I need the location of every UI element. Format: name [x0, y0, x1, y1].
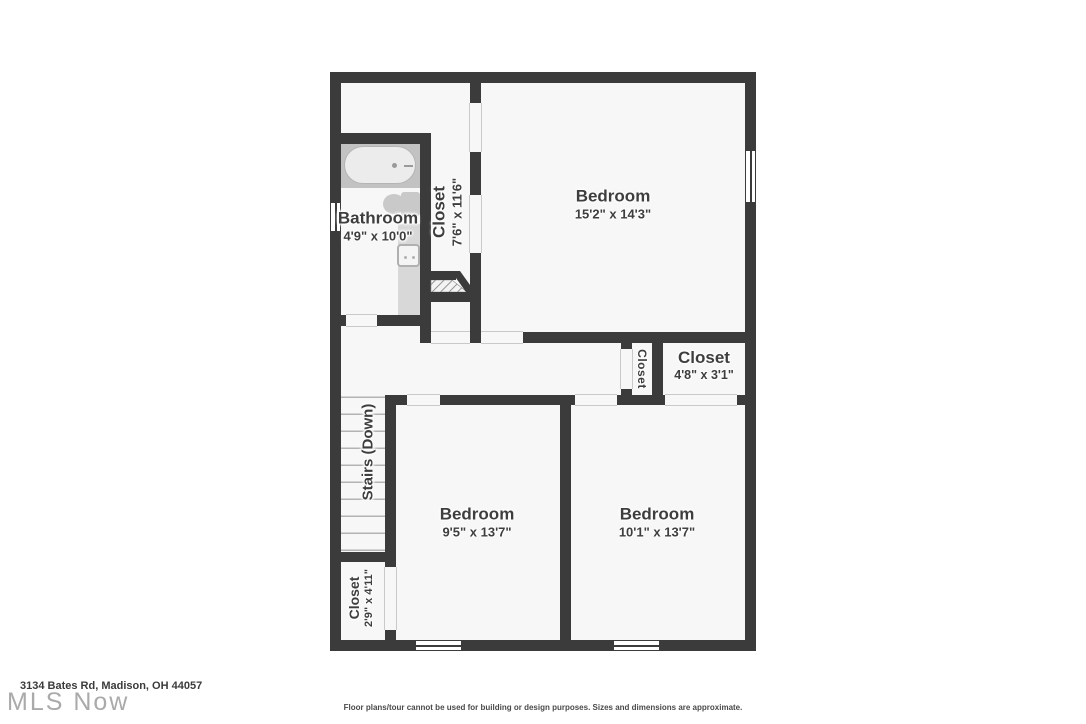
- window-bedroom-right: [613, 640, 660, 651]
- floor-plan: Bathroom 4'9" x 10'0" Closet 7'6" x 11'6…: [330, 72, 756, 651]
- room-label-closet-hall: Closet 4'8" x 3'1": [674, 349, 734, 383]
- room-dims: 7'6" x 11'6": [449, 178, 465, 246]
- room-label-bedroom-top: Bedroom 15'2" x 14'3": [575, 188, 651, 223]
- door-opening-closet-upper-2: [469, 195, 482, 253]
- wall-bedroom-divider: [560, 395, 571, 640]
- room-label-bedroom-left: Bedroom 9'5" x 13'7": [440, 506, 515, 541]
- sink-icon: [397, 244, 420, 267]
- room-dims: 4'9" x 10'0": [338, 228, 418, 244]
- window-bedroom-top: [745, 150, 756, 203]
- room-label-bathroom: Bathroom 4'9" x 10'0": [338, 210, 418, 245]
- wall-stairs-bottom: [330, 552, 396, 562]
- room-name: Stairs (Down): [360, 404, 377, 501]
- door-opening-bedroom-right: [575, 394, 617, 406]
- wall-closet-right-upper: [470, 72, 481, 103]
- room-name: Bedroom: [575, 188, 651, 207]
- floor-plan-page: Bathroom 4'9" x 10'0" Closet 7'6" x 11'6…: [0, 0, 1086, 724]
- door-opening-bathroom: [346, 314, 377, 327]
- door-opening-closet-bl: [384, 567, 397, 630]
- wall-hall-top: [523, 332, 756, 343]
- room-name: Closet: [674, 349, 734, 368]
- wall-bathroom-top: [330, 133, 431, 144]
- door-opening-small-closet: [620, 349, 633, 389]
- door-opening-bedroom-top: [481, 331, 523, 344]
- wall-closets-divider: [652, 343, 663, 405]
- under-stair-hatch-icon: [427, 271, 481, 302]
- room-name: Closet: [431, 178, 450, 246]
- room-dims: 15'2" x 14'3": [575, 206, 651, 222]
- bathtub-icon: [341, 143, 420, 188]
- room-label-closet-upper: Closet 7'6" x 11'6": [431, 178, 466, 246]
- room-name: Closet: [347, 569, 362, 627]
- tub-faucet-icon: [404, 165, 413, 167]
- room-name: Closet: [635, 349, 649, 389]
- room-name: Bedroom: [619, 506, 695, 525]
- wall-closet-right-mid: [470, 152, 481, 195]
- room-label-stairs: Stairs (Down): [360, 404, 377, 501]
- room-dims: 9'5" x 13'7": [440, 524, 515, 540]
- disclaimer-text: Floor plans/tour cannot be used for buil…: [0, 703, 1086, 712]
- room-label-closet-bottom: Closet 2'9" x 4'11": [347, 569, 377, 627]
- door-opening-closet-upper-1: [469, 103, 482, 152]
- wall: [330, 72, 756, 83]
- room-label-bedroom-right: Bedroom 10'1" x 13'7": [619, 506, 695, 541]
- wall-stairs-right: [385, 398, 396, 562]
- room-dims: 10'1" x 13'7": [619, 524, 695, 540]
- bathtub-basin-icon: [344, 146, 416, 184]
- room-dims: 4'8" x 3'1": [674, 368, 734, 384]
- room-name: Bedroom: [440, 506, 515, 525]
- room-label-closet-hall-small: Closet: [635, 349, 649, 389]
- room-dims: 2'9" x 4'11": [363, 569, 377, 627]
- room-name: Bathroom: [338, 210, 418, 229]
- door-opening-hall-left: [431, 331, 470, 344]
- tub-drain-icon: [392, 163, 397, 168]
- wall: [330, 640, 756, 651]
- door-opening-bedroom-left: [407, 394, 440, 406]
- window-bedroom-left: [415, 640, 462, 651]
- door-opening-closet-hall: [665, 394, 737, 406]
- wall: [330, 72, 341, 651]
